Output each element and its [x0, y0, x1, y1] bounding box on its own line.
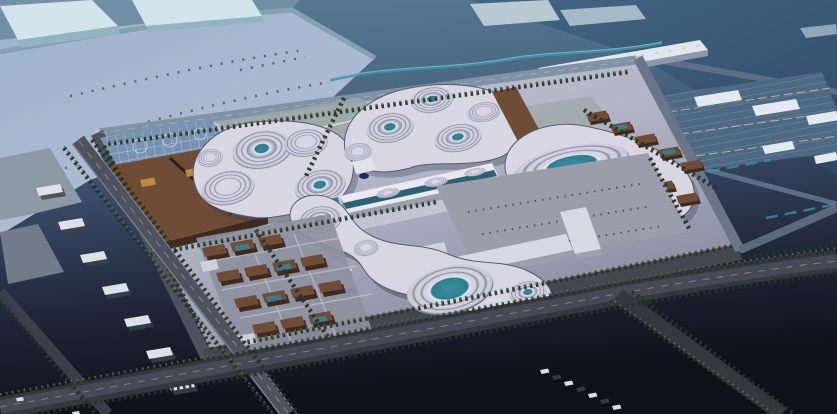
- aerial-rendering: [0, 0, 837, 414]
- site-plan-rendering: [0, 0, 837, 414]
